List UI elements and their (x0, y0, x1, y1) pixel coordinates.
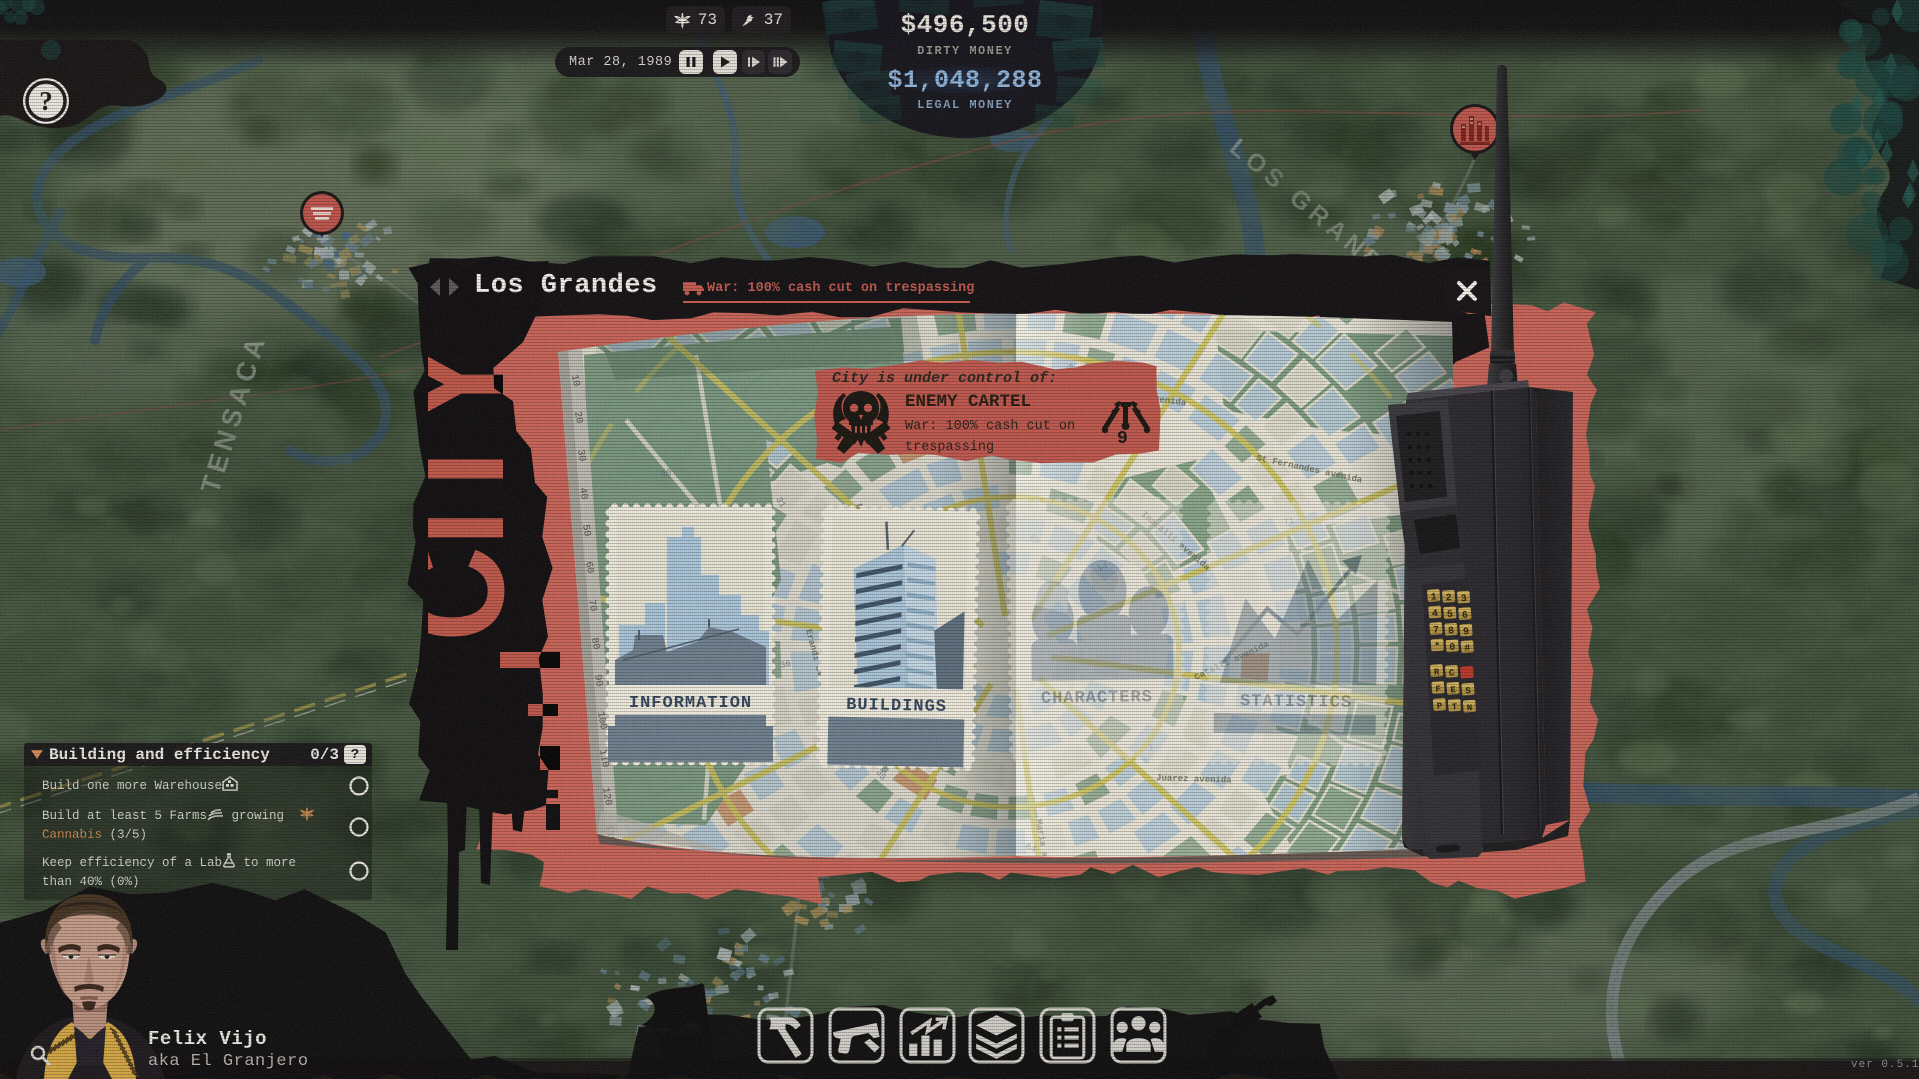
svg-text:INFORMATION: INFORMATION (629, 694, 752, 713)
svg-text:70: 70 (585, 599, 598, 613)
svg-text:0: 0 (1449, 643, 1456, 654)
svg-text:80: 80 (588, 637, 601, 651)
svg-text:CITY: CITY (428, 340, 535, 642)
svg-text:90: 90 (591, 674, 604, 688)
svg-text:20: 20 (571, 411, 584, 425)
svg-text:3: 3 (1460, 594, 1467, 605)
svg-text:6: 6 (1462, 610, 1469, 621)
svg-text:2: 2 (1445, 593, 1452, 604)
svg-text:1: 1 (1430, 592, 1437, 603)
svg-text:20: 20 (586, 834, 599, 846)
svg-text:*: * (1434, 641, 1441, 653)
svg-text:F: F (1435, 684, 1441, 694)
svg-text:BUILDINGS: BUILDINGS (846, 696, 947, 717)
svg-text:CHARACTERS: CHARACTERS (1041, 688, 1153, 709)
svg-text:40: 40 (576, 487, 589, 501)
svg-text:47: 47 (565, 808, 579, 822)
svg-text:7: 7 (1433, 625, 1440, 636)
svg-text:5: 5 (1447, 610, 1454, 621)
svg-text:4: 4 (1432, 609, 1439, 620)
svg-text:60: 60 (582, 561, 595, 575)
svg-text:?: ? (39, 86, 53, 116)
svg-text:30: 30 (574, 449, 587, 463)
svg-text:50: 50 (579, 524, 592, 538)
svg-text:8: 8 (1448, 626, 1455, 637)
svg-text:N: N (1466, 703, 1472, 713)
svg-text:9: 9 (1463, 627, 1470, 638)
svg-text:#: # (1464, 643, 1471, 654)
svg-text:10: 10 (568, 374, 581, 388)
